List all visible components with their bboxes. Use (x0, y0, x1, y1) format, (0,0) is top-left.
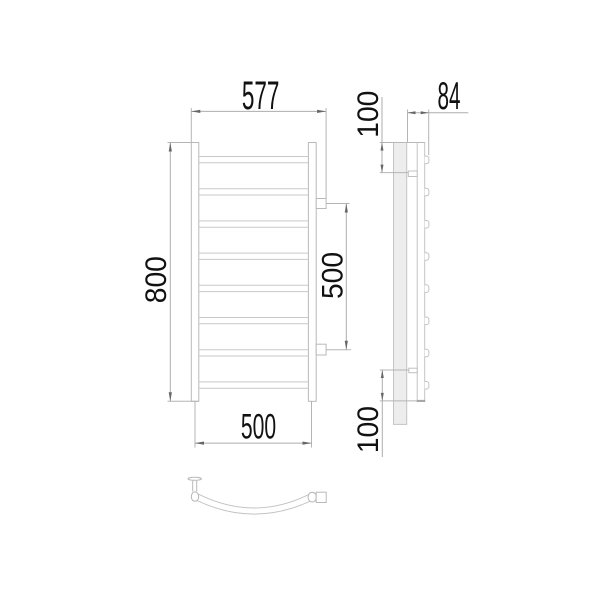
svg-text:500: 500 (241, 408, 276, 447)
svg-text:500: 500 (317, 252, 350, 299)
svg-text:800: 800 (140, 256, 173, 303)
svg-text:100: 100 (353, 91, 386, 138)
svg-text:577: 577 (242, 73, 280, 117)
svg-text:84: 84 (438, 74, 461, 118)
svg-text:100: 100 (352, 406, 385, 453)
